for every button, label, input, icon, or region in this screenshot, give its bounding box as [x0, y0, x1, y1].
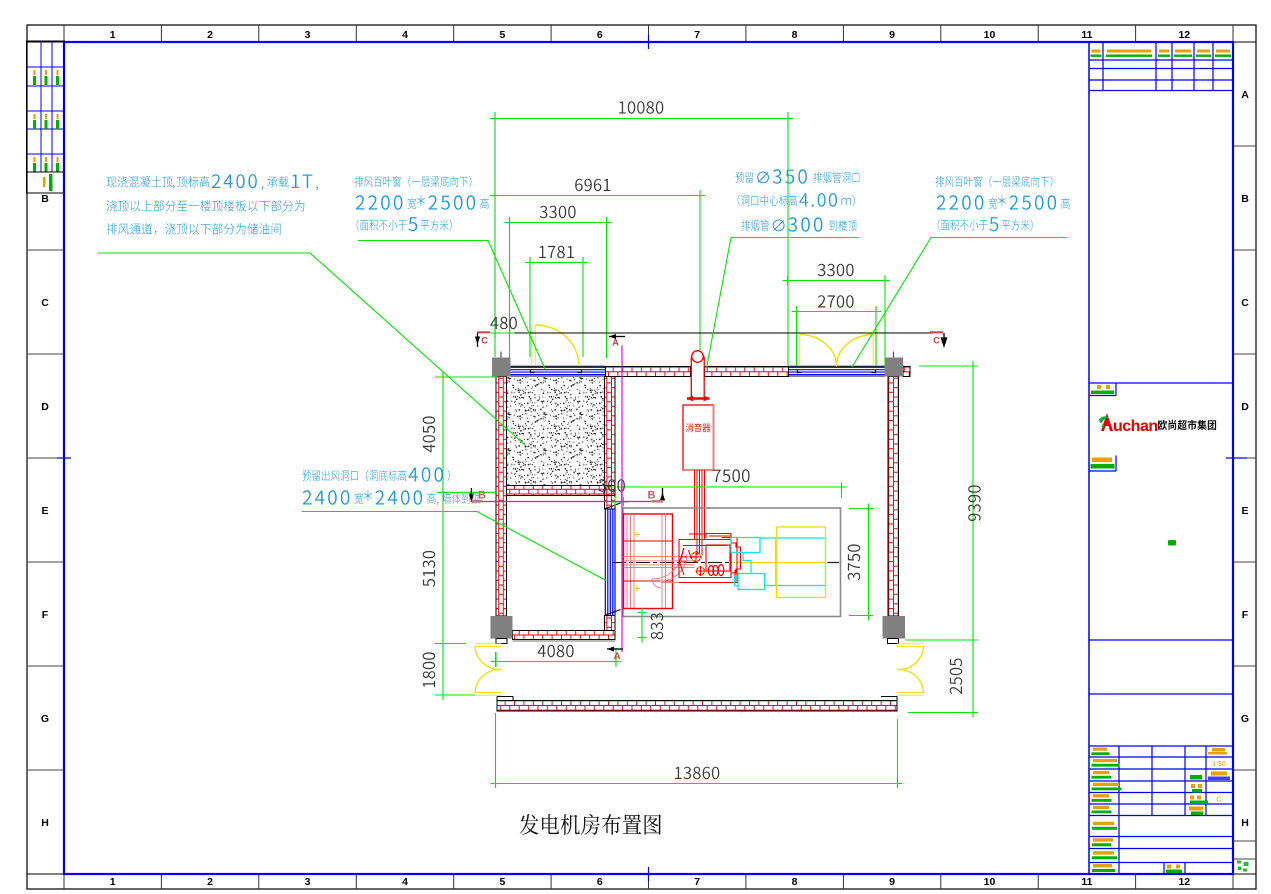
- svg-text:7: 7: [694, 29, 700, 41]
- svg-text:D: D: [1241, 401, 1249, 413]
- svg-text:A: A: [1241, 89, 1249, 101]
- svg-text:2: 2: [207, 29, 213, 41]
- svg-text:5: 5: [499, 29, 505, 41]
- svg-text:9: 9: [889, 29, 895, 41]
- svg-text:G: G: [1241, 713, 1249, 725]
- svg-text:6: 6: [597, 876, 603, 888]
- svg-text:9: 9: [889, 876, 895, 888]
- svg-text:7: 7: [694, 876, 700, 888]
- svg-text:C: C: [933, 336, 940, 347]
- svg-text:12: 12: [1178, 876, 1190, 888]
- svg-text:1: 1: [110, 29, 116, 41]
- svg-text:F: F: [1242, 609, 1249, 621]
- svg-text:G: G: [41, 713, 49, 725]
- svg-text:8: 8: [792, 876, 798, 888]
- svg-text:C: C: [41, 297, 49, 309]
- svg-text:4: 4: [402, 29, 408, 41]
- svg-text:5: 5: [499, 876, 505, 888]
- svg-text:uchan: uchan: [1113, 418, 1158, 435]
- svg-text:B: B: [1241, 193, 1249, 205]
- svg-text:11: 11: [1081, 29, 1092, 41]
- svg-text:E: E: [41, 505, 48, 517]
- svg-text:12: 12: [1178, 29, 1190, 41]
- svg-text:6: 6: [597, 29, 603, 41]
- svg-text:A: A: [612, 338, 619, 349]
- svg-text:B: B: [648, 490, 656, 502]
- svg-text:E: E: [1241, 505, 1248, 517]
- svg-text:H: H: [41, 817, 49, 829]
- svg-text:D: D: [41, 401, 49, 413]
- svg-text:3: 3: [305, 876, 311, 888]
- svg-text:3: 3: [305, 29, 311, 41]
- svg-text:10: 10: [984, 29, 996, 41]
- svg-text:A: A: [614, 651, 621, 662]
- svg-text:10: 10: [984, 876, 996, 888]
- svg-text:8: 8: [792, 29, 798, 41]
- svg-text:B: B: [41, 193, 49, 205]
- svg-text:C: C: [1216, 795, 1222, 804]
- svg-text:11: 11: [1081, 876, 1092, 888]
- svg-text:C: C: [481, 336, 488, 347]
- svg-text:H: H: [1241, 817, 1249, 829]
- svg-text:1:50: 1:50: [1212, 761, 1226, 768]
- svg-text:2: 2: [207, 876, 213, 888]
- svg-text:4: 4: [402, 876, 408, 888]
- svg-text:C: C: [1241, 297, 1249, 309]
- svg-text:F: F: [42, 609, 49, 621]
- svg-text:1: 1: [110, 876, 116, 888]
